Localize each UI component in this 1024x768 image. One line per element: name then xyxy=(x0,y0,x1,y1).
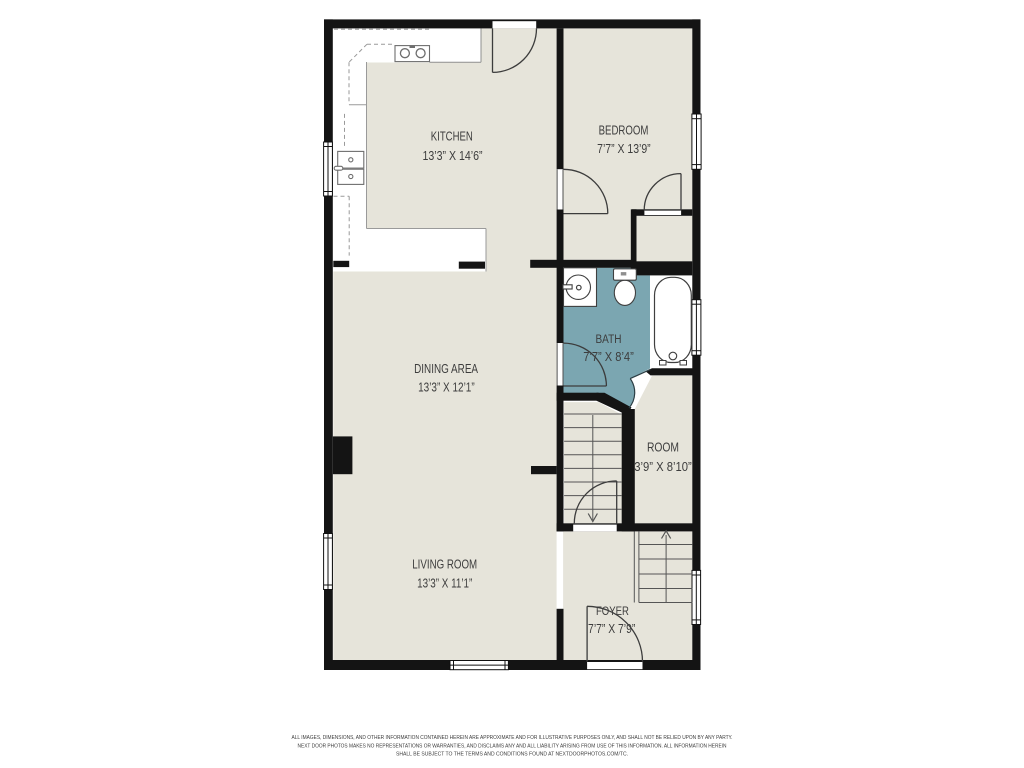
svg-text:SHALL BE SUBJECT TO THE TERMS: SHALL BE SUBJECT TO THE TERMS AND CONDIT… xyxy=(396,752,628,758)
svg-text:LIVING ROOM: LIVING ROOM xyxy=(412,557,477,572)
svg-text:FOYER: FOYER xyxy=(596,604,629,618)
svg-text:13’3” X 11’1”: 13’3” X 11’1” xyxy=(417,576,472,591)
svg-text:DINING AREA: DINING AREA xyxy=(414,361,478,376)
svg-text:13’3” X 12’1”: 13’3” X 12’1” xyxy=(418,380,475,395)
svg-text:7’7” X 8’4”: 7’7” X 8’4” xyxy=(583,349,634,364)
svg-text:BEDROOM: BEDROOM xyxy=(599,123,649,137)
svg-text:NEXT DOOR PHOTOS MAKES NO REPR: NEXT DOOR PHOTOS MAKES NO REPRESENTATION… xyxy=(298,744,727,750)
svg-text:13’3” X 14’6”: 13’3” X 14’6” xyxy=(423,148,483,163)
svg-text:3’9” X 8’10”: 3’9” X 8’10” xyxy=(634,459,692,474)
svg-text:BATH: BATH xyxy=(596,332,622,346)
svg-text:7’7” X 13’9”: 7’7” X 13’9” xyxy=(597,141,651,156)
svg-text:ALL IMAGES, DIMENSIONS, AND OT: ALL IMAGES, DIMENSIONS, AND OTHER INFORM… xyxy=(292,735,733,741)
svg-text:KITCHEN: KITCHEN xyxy=(431,130,473,144)
svg-text:ROOM: ROOM xyxy=(647,440,679,455)
svg-text:7’7” X 7’9”: 7’7” X 7’9” xyxy=(588,621,635,636)
